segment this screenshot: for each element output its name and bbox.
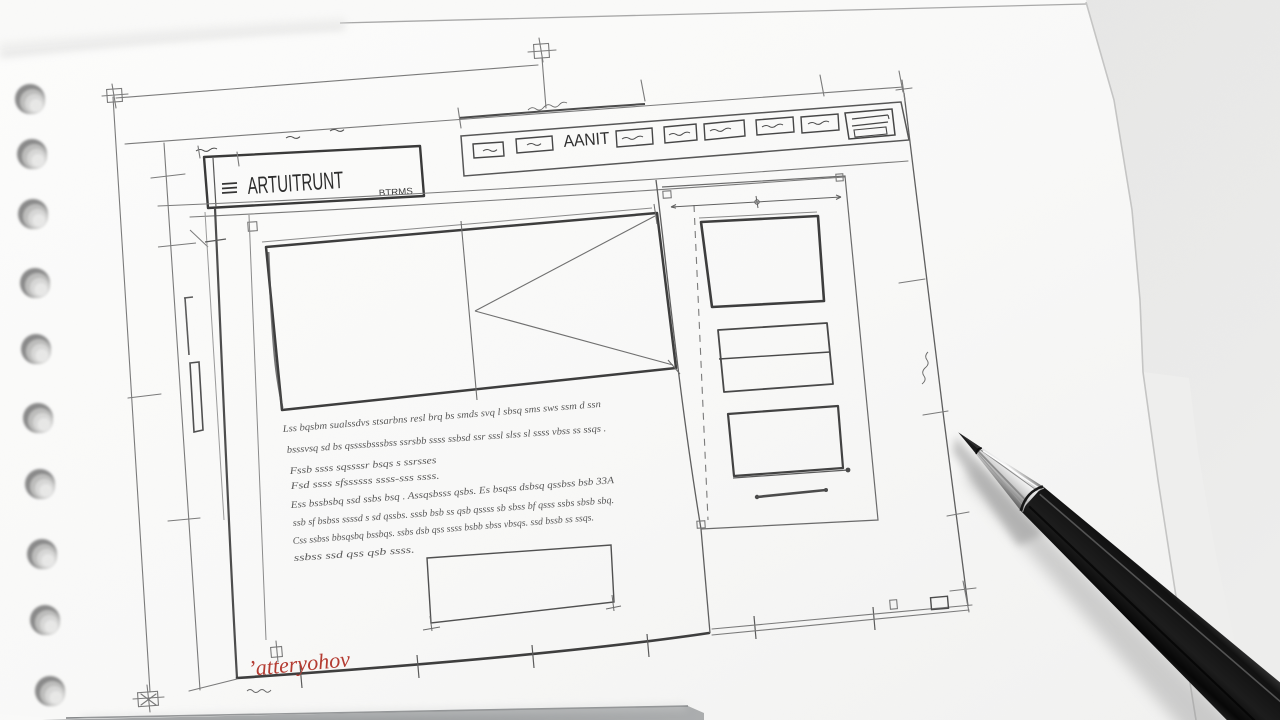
svg-text:AANIT: AANIT	[563, 129, 610, 151]
svg-text:BTRMS: BTRMS	[378, 186, 413, 198]
